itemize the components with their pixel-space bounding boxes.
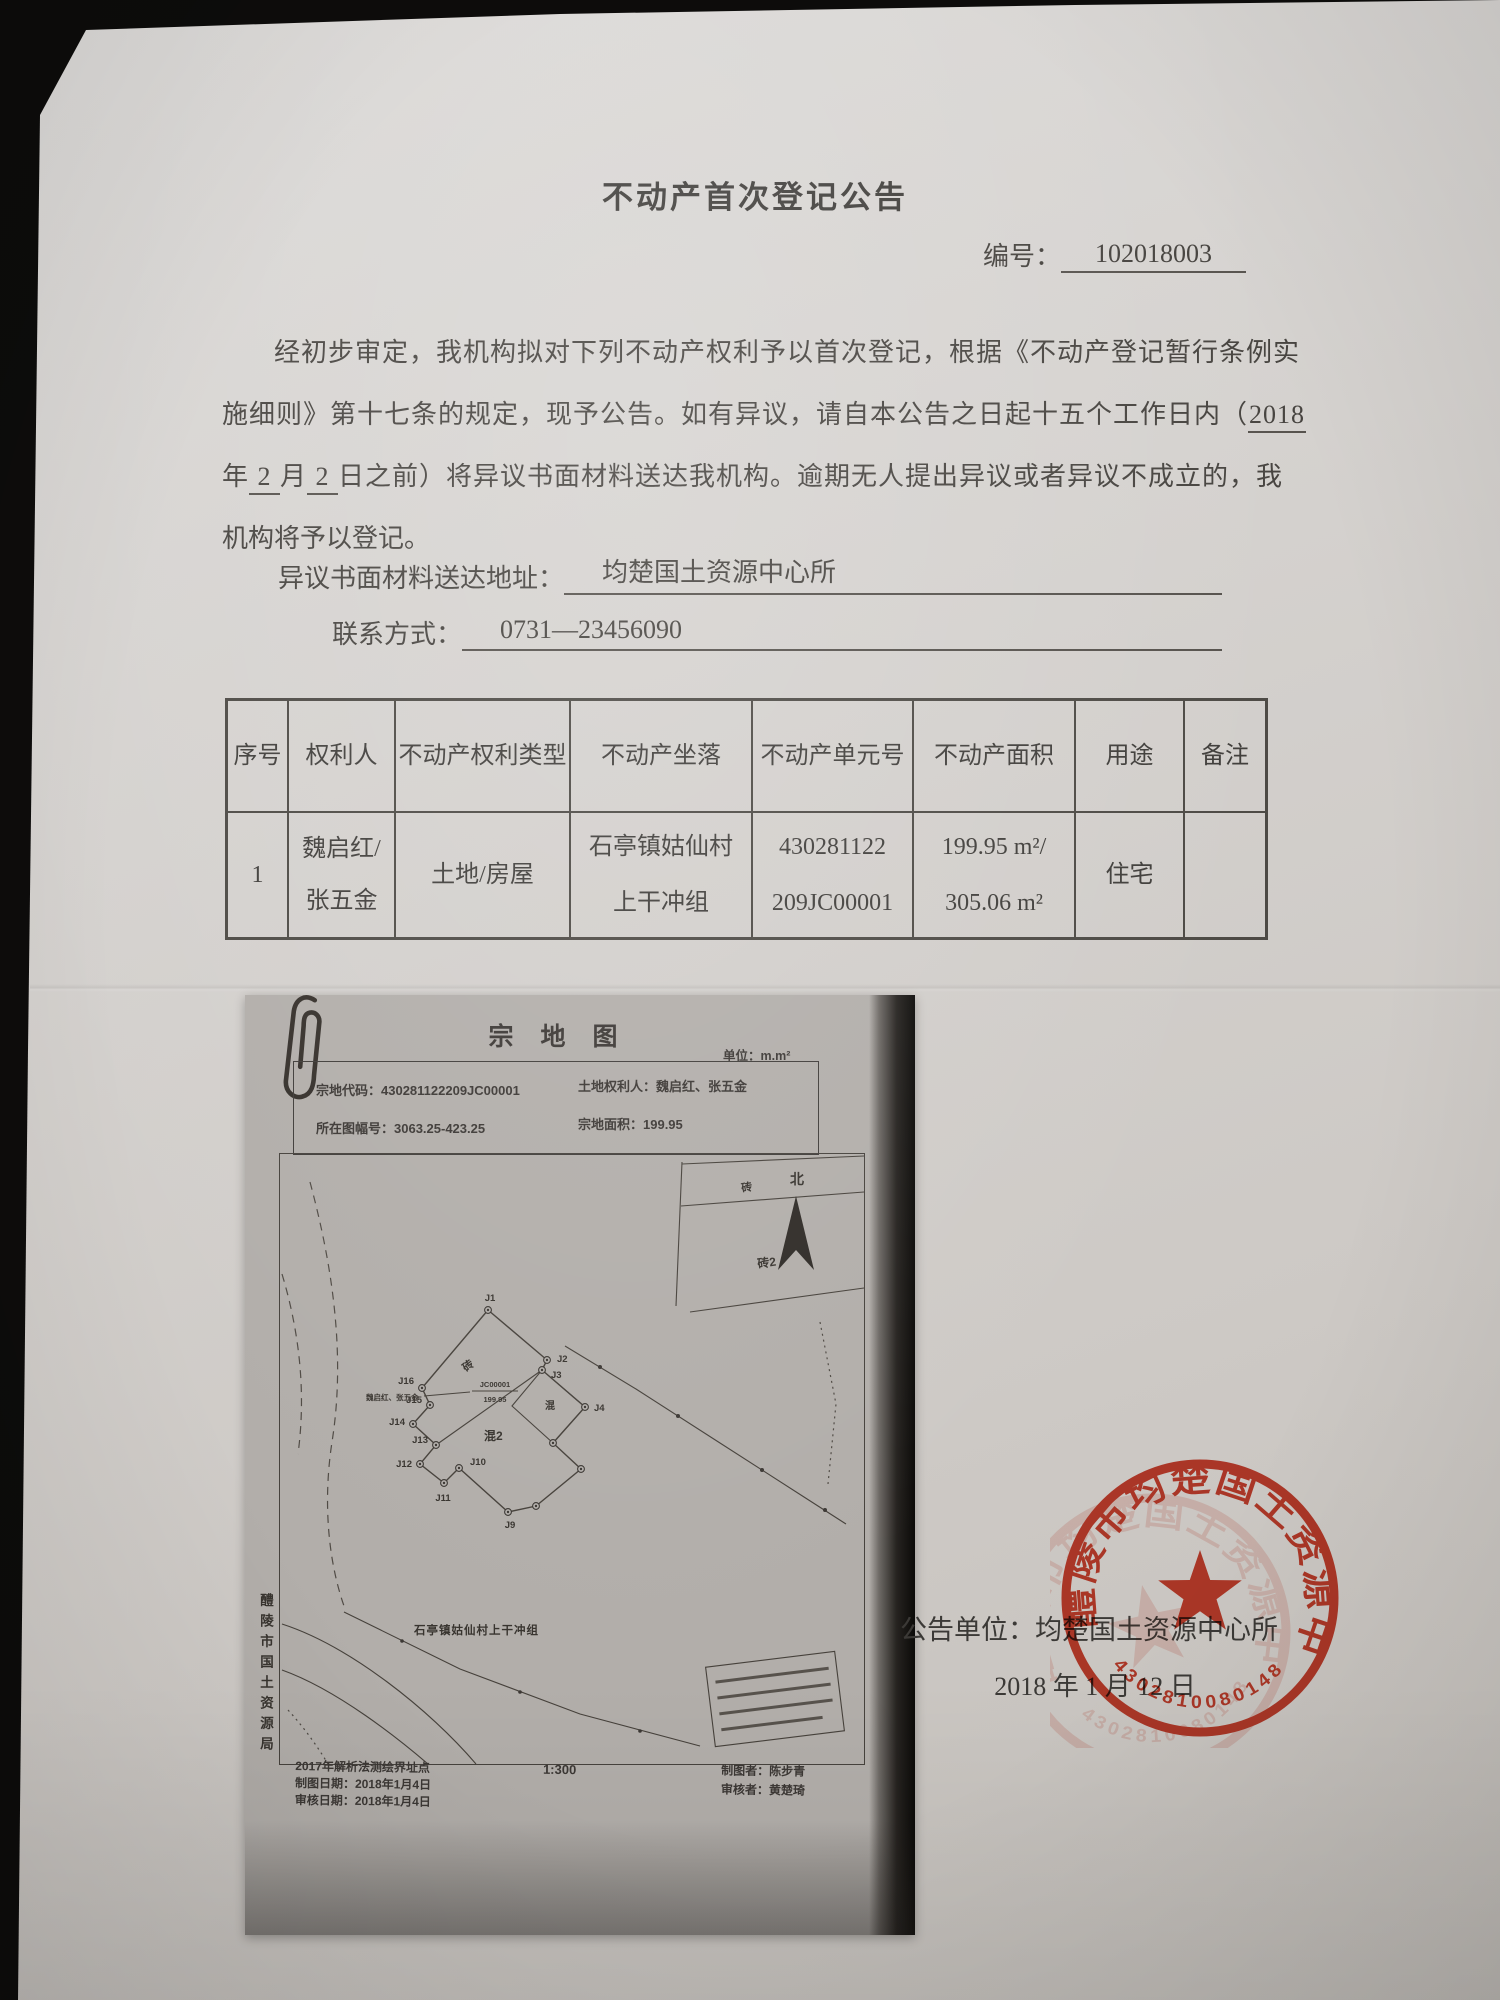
contact-label: 联系方式： (332, 614, 462, 651)
paragraph-line-3: 年 2 月 2 日之前）将异议书面材料送达我机构。逾期无人提出异议或者异议不成立… (222, 456, 1317, 493)
contact-row: 联系方式： 0731—23456090 (332, 614, 1222, 651)
boundary-point-label-j16: J16 (398, 1376, 414, 1387)
dotted-boundary (820, 1322, 836, 1484)
inner-code-label: JC00001 (480, 1380, 510, 1389)
map-credits: 制图者：陈步青 审核者：黄楚琦 (721, 1761, 806, 1800)
paragraph-line-1: 经初步审定，我机构拟对下列不动产权利予以首次登记，根据《不动产登记暂行条例实 (222, 332, 1317, 369)
row-right-type: 土地/房屋 (395, 812, 570, 938)
neighbor-strip-line-1 (682, 1156, 864, 1164)
sheet-number: 所在图幅号：3063.25-423.25 (316, 1118, 485, 1137)
leader-line (424, 1392, 470, 1396)
concrete-annex-outline (512, 1370, 585, 1443)
agency-vertical-label: 醴陵市国土资源局 (255, 1593, 275, 1757)
official-seal: 醴陵市均楚国土资源中心所 4302810080148 (1050, 1448, 1350, 1748)
parcel-code: 宗地代码：430281122209JC00001 (316, 1080, 520, 1099)
row-area: 199.95 m²/ 305.06 m² (913, 812, 1075, 938)
map-footnote-method: 2017年解析法测绘界址点 (295, 1758, 431, 1777)
map-photo-dark-edge (869, 995, 915, 1935)
concrete2-building-label: 混2 (484, 1428, 503, 1443)
year-underlined: 2018 (1248, 400, 1306, 433)
day-value-underlined: 2 (307, 462, 338, 495)
area-line2: 305.06 m² (945, 888, 1043, 918)
issuer-row: 公告单位：均楚国土资源中心所 (900, 1608, 1278, 1647)
boundary-point-label-j2: J2 (557, 1354, 568, 1365)
neighbor-strip-line-3 (690, 1288, 864, 1312)
paragraph-line-4: 机构将予以登记。 (222, 518, 1317, 555)
row-remark (1184, 812, 1266, 938)
unit-no-line2: 209JC00001 (772, 888, 893, 918)
parcel-sketch: 北 砖 砖2 (280, 1154, 864, 1764)
doc-number-label: 编号： (983, 236, 1061, 273)
cadastral-drawing: 北 砖 砖2 (279, 1153, 865, 1765)
hatched-structure (706, 1651, 845, 1746)
boundary-point-label-j11: J11 (435, 1493, 451, 1504)
boundary-line-bottom (344, 1612, 700, 1746)
address-row: 异议书面材料送达地址： 均楚国土资源中心所 (278, 552, 1222, 595)
neighbor-strip-left-border (676, 1162, 682, 1306)
boundary-point-label-j9: J9 (505, 1520, 516, 1531)
boundary-point-label-j13: J13 (412, 1435, 428, 1446)
boundary-point-markers (410, 1307, 589, 1516)
col-header-remark: 备注 (1184, 700, 1266, 812)
north-label: 北 (790, 1171, 804, 1187)
drafter-label: 制图者：陈步青 (721, 1761, 805, 1781)
neighbor-brick-label: 砖 (740, 1179, 753, 1195)
concrete-building-label: 混 (545, 1399, 555, 1412)
north-arrow-icon (778, 1196, 814, 1270)
boundary-point-label-j12: J12 (396, 1459, 412, 1470)
issue-date: 2018 年 1 月 12 日 (900, 1666, 1290, 1703)
paragraph-line-2-text: 施细则》第十七条的规定，现予公告。如有异议，请自本公告之日起十五个工作日内（ (222, 400, 1248, 429)
col-header-location: 不动产坐落 (570, 700, 752, 812)
col-header-area: 不动产面积 (913, 700, 1075, 812)
month-char: 月 (280, 462, 307, 491)
map-title: 宗 地 图 (408, 1017, 708, 1053)
col-header-unit-no: 不动产单元号 (752, 700, 913, 812)
contact-value: 0731—23456090 (462, 615, 1222, 651)
svg-text:4302810080148: 4302810080148 (1110, 1655, 1289, 1712)
col-header-no: 序号 (227, 700, 288, 812)
map-footnote-draft-date: 制图日期：2018年1月4日 (295, 1775, 431, 1794)
seal-ghost-impression (1050, 1448, 1318, 1748)
holder-line1: 魏启红/ (302, 834, 381, 864)
paper-crease (30, 984, 1500, 992)
inner-divider-line (436, 1370, 542, 1445)
seal-star-icon (1158, 1550, 1242, 1630)
row-unit-no: 430281122 209JC00001 (752, 812, 913, 938)
boundary-point-label-j15: J15 (406, 1395, 423, 1406)
row-location: 石亭镇姑仙村 上干冲组 (570, 812, 752, 938)
address-label: 异议书面材料送达地址： (278, 558, 564, 595)
boundary-point-label-j4: J4 (594, 1403, 605, 1414)
neighbor-brick2-label: 砖2 (756, 1253, 777, 1270)
dotted-path (288, 1710, 328, 1764)
photographed-document: 不动产首次登记公告 编号： 102018003 经初步审定，我机构拟对下列不动产… (0, 0, 1500, 2000)
seal-serial: 4302810080148 (1110, 1655, 1289, 1712)
row-usage: 住宅 (1075, 812, 1184, 938)
land-holder: 土地权利人：魏启红、张五金 (578, 1076, 747, 1095)
registration-table: 序号 权利人 不动产权利类型 不动产坐落 不动产单元号 不动产面积 用途 备注 … (225, 698, 1268, 940)
year-char: 年 (222, 462, 249, 491)
page-title: 不动产首次登记公告 (375, 172, 1135, 217)
road-dashed-line (310, 1182, 344, 1606)
map-photo-bottom-shade (245, 1820, 915, 1935)
address-value: 均楚国土资源中心所 (564, 552, 1222, 595)
col-header-holder: 权利人 (288, 700, 395, 812)
brick-building-label: 砖 (459, 1357, 476, 1375)
map-info-box: 宗地代码：430281122209JC00001 土地权利人：魏启红、张五金 所… (293, 1061, 819, 1155)
reviewer-label: 审核者：黄楚琦 (721, 1780, 805, 1800)
issuer-value: 均楚国土资源中心所 (1035, 1615, 1278, 1645)
doc-number-row: 编号： 102018003 (983, 236, 1246, 273)
neighbor-strip-line-2 (681, 1192, 864, 1206)
map-footnotes: 2017年解析法测绘界址点 制图日期：2018年1月4日 审核日期：2018年1… (295, 1758, 432, 1811)
paperclip-icon (261, 989, 345, 1117)
paragraph-line-3-text: 日之前）将异议书面材料送达我机构。逾期无人提出异议或者异议不成立的，我 (338, 462, 1283, 491)
month-value-underlined: 2 (249, 462, 280, 495)
area-line1: 199.95 m²/ (942, 832, 1047, 862)
map-unit-label: 单位：m.m² (723, 1045, 790, 1064)
path-curve-2 (282, 1670, 428, 1764)
cadastral-map-inset: 宗 地 图 单位：m.m² 宗地代码：430281122209JC00001 土… (245, 995, 915, 1935)
boundary-point-label-j3: J3 (551, 1370, 562, 1381)
boundary-point-label-j10: J10 (470, 1457, 486, 1468)
seal-ring (1066, 1464, 1334, 1732)
boundary-point-label-j1: J1 (485, 1293, 496, 1304)
parcel-area: 宗地面积：199.95 (578, 1114, 683, 1133)
row-holder: 魏启红/ 张五金 (288, 812, 395, 938)
paper-sheet: 不动产首次登记公告 编号： 102018003 经初步审定，我机构拟对下列不动产… (0, 0, 1500, 2000)
doc-number-value: 102018003 (1061, 239, 1246, 273)
location-line2: 上干冲组 (613, 888, 709, 918)
unit-no-line1: 430281122 (779, 832, 886, 862)
seal-ring-text: 醴陵市均楚国土资源中心所 (1050, 1448, 1341, 1663)
parcel-outline (413, 1310, 585, 1512)
inner-owner-label: 魏启红、张五金 (365, 1392, 419, 1402)
paragraph-line-2: 施细则》第十七条的规定，现予公告。如有异议，请自本公告之日起十五个工作日内（20… (222, 394, 1317, 431)
issuer-label: 公告单位： (900, 1615, 1035, 1645)
tick-boundary-line (565, 1346, 846, 1524)
boundary-point-label-j14: J14 (389, 1417, 406, 1428)
row-no: 1 (227, 812, 288, 938)
map-footnote-review-date: 审核日期：2018年1月4日 (295, 1792, 431, 1811)
road-dashed-line-2 (282, 1274, 301, 1454)
col-header-right-type: 不动产权利类型 (395, 700, 570, 812)
scale-label: 1:300 (543, 1762, 576, 1777)
col-header-usage: 用途 (1075, 700, 1184, 812)
holder-line2: 张五金 (306, 886, 378, 916)
location-line1: 石亭镇姑仙村 (589, 832, 733, 862)
inner-area-label: 199.95 (484, 1395, 507, 1404)
path-curve-1 (282, 1624, 476, 1764)
svg-text:醴陵市均楚国土资源中心所: 醴陵市均楚国土资源中心所 (1050, 1448, 1341, 1663)
village-label: 石亭镇姑仙村上干冲组 (413, 1623, 539, 1637)
